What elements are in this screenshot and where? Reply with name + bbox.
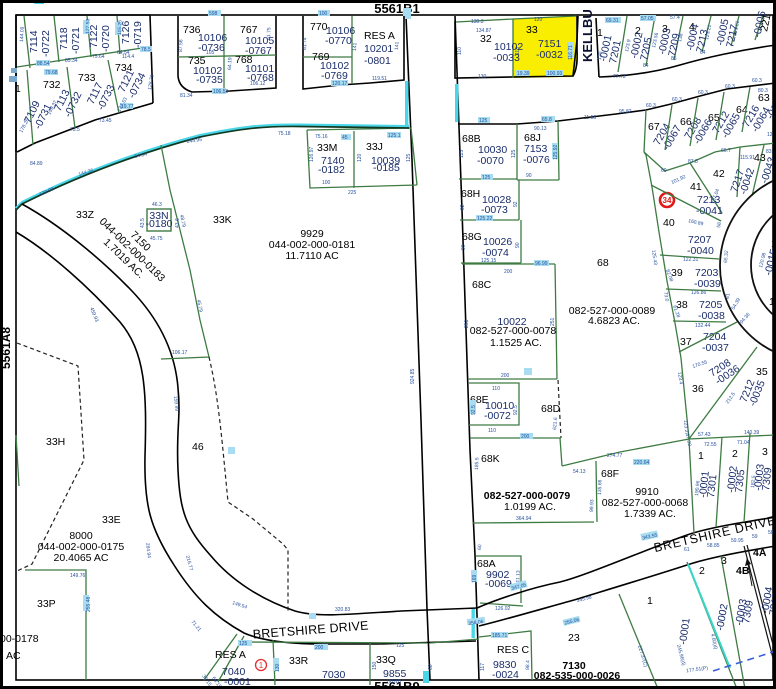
svg-text:33R: 33R [289,655,309,667]
svg-text:100: 100 [322,180,331,186]
svg-text:AC: AC [6,650,21,662]
svg-text:98.4: 98.4 [525,660,531,670]
svg-text:3: 3 [721,555,727,567]
svg-text:92.5: 92.5 [471,405,477,415]
svg-text:60: 60 [477,544,483,550]
svg-text:130.3: 130.3 [471,19,484,25]
svg-text:68H: 68H [461,188,480,200]
svg-text:127.53: 127.53 [85,18,92,34]
svg-text:-0182: -0182 [318,164,345,176]
svg-text:68: 68 [597,257,609,269]
svg-text:60.3: 60.3 [646,103,656,109]
svg-text:-0722: -0722 [40,30,52,57]
svg-text:66.7: 66.7 [721,148,731,154]
svg-text:71.04: 71.04 [737,440,750,446]
svg-text:200: 200 [504,269,513,275]
svg-text:99.93: 99.93 [589,499,595,512]
svg-text:-0721: -0721 [70,27,82,54]
svg-text:73.5: 73.5 [70,127,80,133]
svg-text:-0037: -0037 [702,342,729,354]
svg-text:33P: 33P [37,598,56,610]
svg-text:3: 3 [762,446,768,458]
svg-text:75.18: 75.18 [278,131,291,137]
svg-text:68C: 68C [472,279,492,291]
svg-text:1: 1 [15,83,21,95]
svg-text:95.82: 95.82 [619,109,632,115]
svg-text:45: 45 [342,135,348,141]
svg-text:61.74: 61.74 [302,37,308,50]
svg-text:125: 125 [479,118,488,124]
svg-text:132.44: 132.44 [695,323,711,329]
svg-text:92: 92 [460,204,466,210]
svg-text:-0072: -0072 [484,410,511,422]
svg-text:57.05: 57.05 [641,16,654,22]
svg-text:68G: 68G [462,231,482,243]
svg-text:1: 1 [259,661,264,670]
svg-text:125.92: 125.92 [553,144,559,160]
svg-text:-0040: -0040 [687,245,714,257]
svg-text:69.31: 69.31 [606,18,619,24]
svg-text:200: 200 [501,373,510,379]
svg-text:-0024: -0024 [492,669,519,681]
svg-text:88.54: 88.54 [37,61,50,67]
svg-text:60.3: 60.3 [698,90,708,96]
svg-text:(XHD): (XHD) [387,679,401,685]
svg-text:150: 150 [372,661,378,670]
svg-text:-0719: -0719 [132,21,144,48]
svg-text:125: 125 [511,149,517,158]
svg-text:255.48: 255.48 [86,596,92,612]
svg-text:60.3: 60.3 [752,78,762,84]
svg-text:75.16: 75.16 [315,134,328,140]
svg-text:23: 23 [568,632,580,644]
svg-text:57.4: 57.4 [670,15,680,21]
svg-text:41: 41 [690,181,702,193]
svg-text:116.71: 116.71 [568,45,574,60]
svg-text:200: 200 [315,645,324,651]
svg-text:105: 105 [206,50,215,56]
svg-text:60.3: 60.3 [725,84,735,90]
svg-text:-0032: -0032 [536,49,563,61]
svg-text:1: 1 [647,595,653,607]
svg-text:60: 60 [428,664,434,670]
svg-text:33H: 33H [46,436,65,448]
svg-text:169: 169 [472,574,478,583]
svg-text:65.8: 65.8 [542,117,552,123]
svg-text:5561B1: 5561B1 [374,1,420,16]
svg-text:110: 110 [492,386,500,392]
svg-text:19.39: 19.39 [517,71,530,77]
svg-text:36: 36 [692,383,704,395]
svg-text:87.8: 87.8 [688,159,698,165]
svg-text:85.34: 85.34 [65,58,78,64]
svg-text:33J: 33J [366,141,383,153]
svg-text:106.53: 106.53 [213,89,229,95]
svg-text:57.43: 57.43 [698,432,711,438]
svg-text:7030: 7030 [322,669,346,681]
svg-text:32: 32 [480,33,492,45]
svg-text:84.89: 84.89 [30,161,43,167]
svg-text:125: 125 [406,153,412,162]
svg-text:69: 69 [661,168,667,174]
svg-text:61.75: 61.75 [266,27,272,40]
svg-text:33E: 33E [102,514,121,526]
svg-text:79.68: 79.68 [45,70,58,76]
svg-text:185.5: 185.5 [474,457,480,470]
svg-text:72.55: 72.55 [704,442,717,448]
svg-text:119.51: 119.51 [372,76,387,82]
svg-text:11.7110 AC: 11.7110 AC [285,250,339,262]
svg-text:126.02: 126.02 [495,606,511,612]
svg-text:64.19: 64.19 [227,57,233,70]
svg-text:251: 251 [464,319,470,328]
svg-text:106.17: 106.17 [172,350,188,356]
svg-text:125: 125 [396,643,405,649]
svg-text:-0039: -0039 [694,278,721,290]
svg-text:115.25: 115.25 [117,20,124,35]
svg-text:141: 141 [394,41,400,50]
svg-text:68K: 68K [481,453,500,465]
svg-text:92: 92 [513,201,519,207]
svg-text:59.95: 59.95 [731,538,744,544]
svg-text:-0770: -0770 [325,35,352,47]
svg-text:100: 100 [319,11,328,17]
svg-text:135.66: 135.66 [597,479,604,495]
svg-text:68F: 68F [601,468,619,480]
svg-text:85: 85 [671,56,677,62]
svg-text:126.97: 126.97 [309,146,315,162]
svg-text:125.22: 125.22 [477,216,493,222]
svg-text:4A: 4A [753,547,767,559]
svg-text:-0720: -0720 [100,25,112,52]
svg-text:42: 42 [713,168,725,180]
svg-text:90: 90 [526,173,532,179]
svg-text:924.85: 924.85 [410,368,416,384]
svg-text:120: 120 [357,153,363,162]
svg-text:732: 732 [43,79,61,91]
svg-text:58: 58 [768,530,774,536]
svg-text:58.85: 58.85 [707,543,720,549]
svg-text:92.5: 92.5 [513,405,519,415]
svg-text:320.83: 320.83 [335,607,351,613]
svg-text:90.13: 90.13 [534,126,547,132]
svg-text:96.99: 96.99 [535,261,548,267]
svg-text:144.09: 144.09 [19,26,26,42]
svg-text:106.12: 106.12 [250,81,266,87]
svg-text:621.6: 621.6 [552,417,559,430]
svg-text:RES A: RES A [364,30,395,42]
svg-text:-0073: -0073 [481,204,508,216]
svg-text:78.5: 78.5 [141,47,151,53]
svg-text:59: 59 [752,534,758,540]
svg-text:7114: 7114 [28,30,40,53]
svg-text:43.5: 43.5 [140,218,146,228]
svg-text:598: 598 [209,11,218,17]
svg-text:2: 2 [732,448,738,460]
svg-text:90: 90 [461,244,467,250]
svg-text:87.56: 87.56 [178,39,184,52]
svg-text:-0801: -0801 [364,55,391,67]
svg-text:43.6: 43.6 [175,218,181,228]
svg-text:54.13: 54.13 [573,469,586,475]
svg-text:114.4: 114.4 [122,54,134,60]
svg-text:130: 130 [478,74,487,80]
svg-text:00-0178: 00-0178 [0,633,39,645]
svg-text:118: 118 [515,47,521,55]
svg-text:81.34: 81.34 [180,93,193,99]
svg-text:2: 2 [699,565,705,577]
svg-text:117: 117 [480,663,486,671]
svg-text:115.91: 115.91 [740,155,755,161]
svg-text:33K: 33K [213,214,232,226]
svg-text:-0038: -0038 [698,310,725,322]
svg-text:33Q: 33Q [376,654,396,666]
svg-text:120: 120 [597,51,604,60]
svg-text:4B: 4B [736,565,750,577]
svg-text:100.93: 100.93 [547,71,563,77]
svg-text:1.7339 AC.: 1.7339 AC. [624,508,676,520]
svg-text:33M: 33M [317,142,337,154]
svg-text:75.64: 75.64 [92,54,105,60]
svg-text:082-535-000-0026: 082-535-000-0026 [534,670,621,682]
svg-text:130: 130 [275,663,281,672]
svg-text:80.3: 80.3 [758,88,768,94]
svg-text:134.87: 134.87 [476,28,492,34]
svg-text:125: 125 [482,175,491,181]
svg-text:120: 120 [534,17,543,23]
svg-text:125: 125 [459,149,465,158]
svg-text:90: 90 [515,242,521,248]
svg-text:77.73: 77.73 [613,74,626,80]
svg-text:110: 110 [488,428,496,434]
svg-text:RES A: RES A [215,649,246,661]
svg-text:34: 34 [663,196,672,205]
svg-text:84: 84 [643,63,649,69]
svg-text:1.0199 AC.: 1.0199 AC. [504,501,556,513]
svg-text:125.15: 125.15 [481,258,497,264]
svg-text:4.6823 AC.: 4.6823 AC. [588,315,640,327]
svg-text:7118: 7118 [58,27,70,50]
svg-text:125: 125 [239,641,248,647]
svg-text:-0735: -0735 [196,74,223,86]
svg-text:274.77: 274.77 [607,453,623,459]
svg-text:251: 251 [550,317,556,326]
svg-text:140.39: 140.39 [744,430,760,436]
svg-text:200: 200 [521,434,530,440]
svg-text:68D: 68D [541,403,561,415]
svg-text:364.94: 364.94 [516,516,532,522]
svg-text:185.71: 185.71 [492,633,508,639]
svg-text:35: 35 [756,366,768,378]
svg-text:46: 46 [192,441,204,453]
svg-text:-0076: -0076 [523,154,550,166]
svg-text:082-527-000-0078: 082-527-000-0078 [470,325,557,337]
svg-text:-0070: -0070 [477,155,504,167]
svg-text:45.75: 45.75 [150,236,163,242]
svg-text:KELLBU: KELLBU [580,9,595,62]
svg-text:120.17: 120.17 [332,81,348,87]
svg-text:60.3: 60.3 [672,97,682,103]
svg-text:73.45: 73.45 [99,118,112,124]
svg-text:-0069: -0069 [485,578,512,590]
svg-text:125.1: 125.1 [388,133,401,139]
svg-text:40: 40 [663,217,675,229]
svg-text:11.58: 11.58 [584,115,596,121]
svg-text:64: 64 [700,50,706,56]
svg-text:1: 1 [698,450,704,462]
svg-text:33: 33 [526,24,538,36]
svg-text:-0180: -0180 [146,218,173,230]
svg-text:220.64: 220.64 [634,460,650,466]
svg-text:-0185: -0185 [373,162,400,174]
svg-text:149.76: 149.76 [70,573,86,579]
svg-text:110: 110 [457,47,463,55]
svg-text:46.3: 46.3 [152,202,162,208]
svg-text:1.1525 AC.: 1.1525 AC. [490,337,542,349]
svg-text:33Z: 33Z [76,209,95,221]
svg-text:10201: 10201 [364,43,393,55]
svg-text:RES C: RES C [497,644,530,656]
svg-text:65.32: 65.32 [723,250,730,263]
svg-text:141: 141 [352,42,358,51]
svg-text:61: 61 [725,293,731,299]
svg-text:20.4065 AC: 20.4065 AC [54,552,109,564]
svg-text:225: 225 [348,190,357,196]
